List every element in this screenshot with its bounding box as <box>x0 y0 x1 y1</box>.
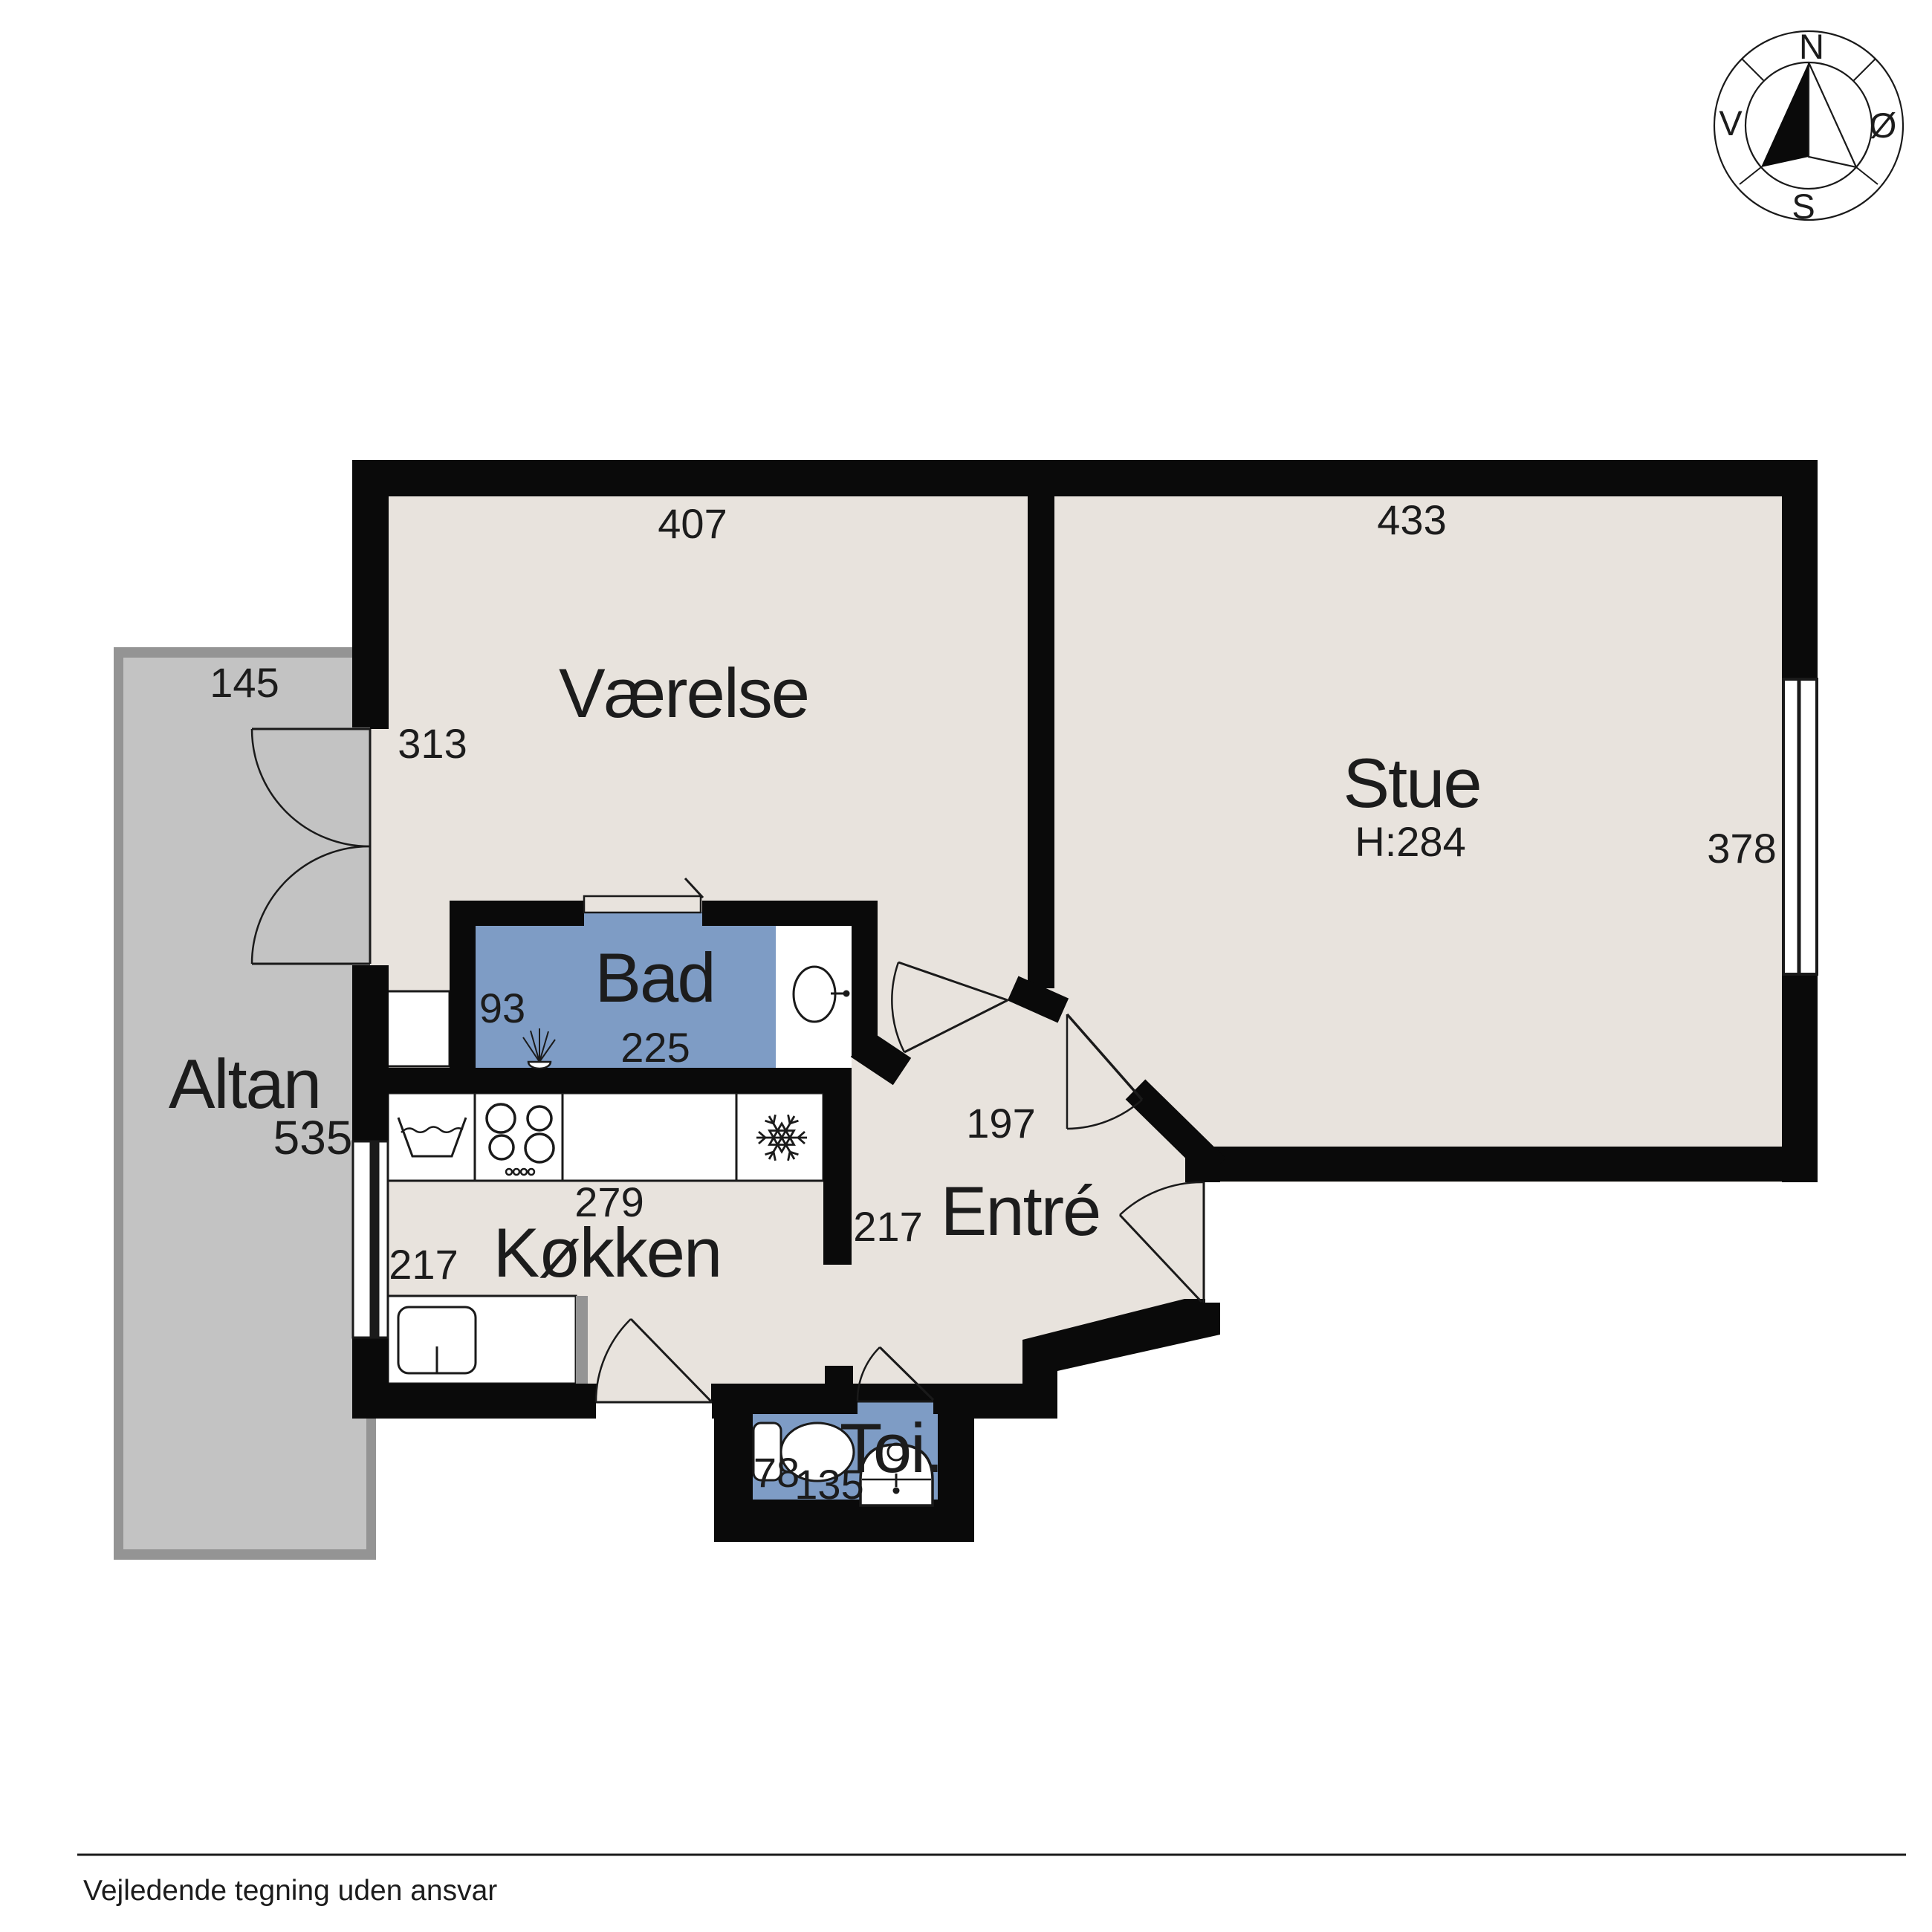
svg-text:145: 145 <box>210 659 279 706</box>
svg-text:313: 313 <box>398 720 467 767</box>
svg-text:407: 407 <box>658 500 727 547</box>
svg-text:V: V <box>1719 103 1743 143</box>
svg-text:225: 225 <box>620 1024 690 1071</box>
svg-text:197: 197 <box>966 1100 1035 1147</box>
svg-text:Stue: Stue <box>1343 744 1480 822</box>
svg-text:78: 78 <box>753 1449 800 1496</box>
svg-text:Vejledende tegning uden ansvar: Vejledende tegning uden ansvar <box>83 1875 497 1907</box>
svg-text:H:284: H:284 <box>1355 818 1465 865</box>
svg-text:217: 217 <box>389 1241 458 1288</box>
svg-text:Bad: Bad <box>594 939 714 1017</box>
svg-text:433: 433 <box>1377 496 1446 543</box>
svg-text:N: N <box>1799 27 1824 66</box>
svg-text:Ø: Ø <box>1870 106 1897 145</box>
svg-text:93: 93 <box>479 985 525 1031</box>
svg-text:535: 535 <box>273 1111 353 1164</box>
svg-text:378: 378 <box>1707 825 1776 872</box>
svg-text:279: 279 <box>574 1179 644 1225</box>
svg-text:S: S <box>1792 187 1815 226</box>
svg-text:Værelse: Værelse <box>559 654 808 732</box>
svg-text:135: 135 <box>794 1461 863 1508</box>
svg-text:Entré: Entré <box>941 1172 1100 1250</box>
svg-text:217: 217 <box>853 1203 922 1250</box>
